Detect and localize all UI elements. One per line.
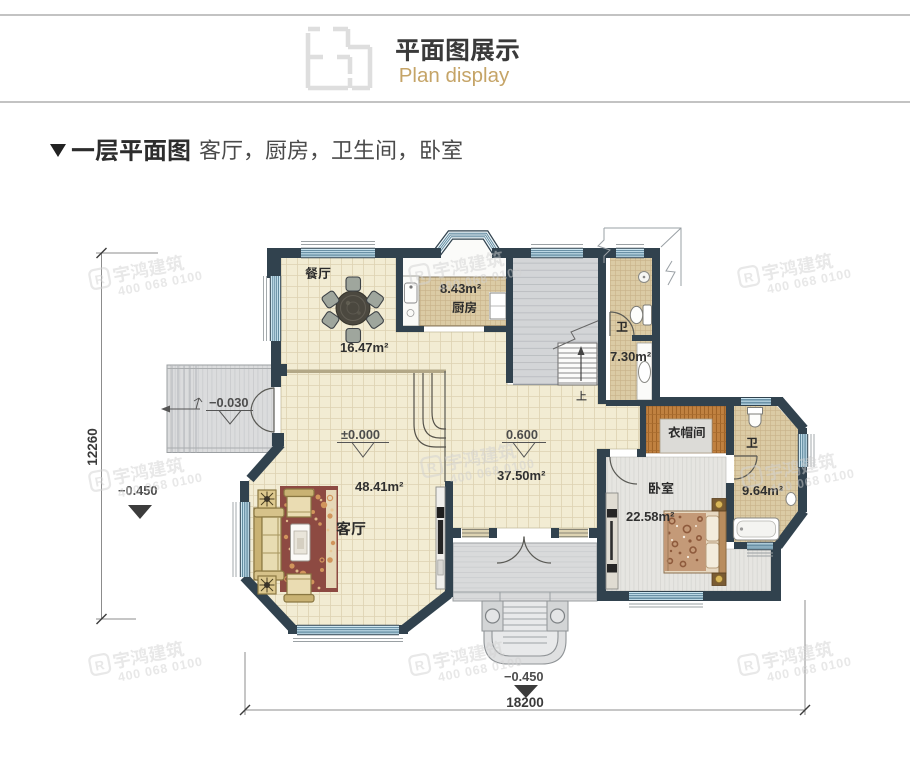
svg-text:7.30m²: 7.30m² — [610, 349, 652, 364]
svg-text:12260: 12260 — [85, 428, 100, 466]
svg-text:16.47m²: 16.47m² — [340, 340, 389, 355]
svg-text:48.41m²: 48.41m² — [355, 479, 404, 494]
svg-text:Plan display: Plan display — [399, 64, 510, 87]
svg-text:−0.450: −0.450 — [504, 669, 544, 684]
svg-text:18200: 18200 — [506, 695, 544, 710]
svg-text:0.600: 0.600 — [506, 427, 538, 442]
svg-text:±0.000: ±0.000 — [341, 427, 380, 442]
svg-text:22.58m²: 22.58m² — [626, 509, 675, 524]
svg-text:−0.030: −0.030 — [209, 395, 249, 410]
